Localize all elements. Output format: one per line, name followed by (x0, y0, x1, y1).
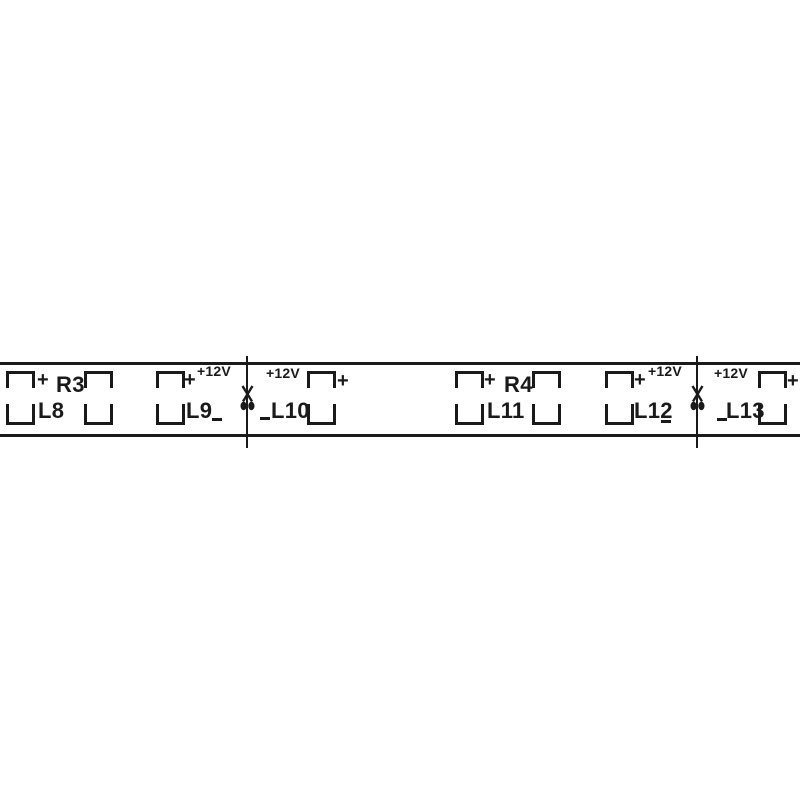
voltage-label: +12V (714, 366, 748, 380)
component-ref-label: L11 (487, 400, 525, 422)
plus-polarity-mark: + (787, 371, 799, 391)
component-ref-label: R4 (504, 374, 533, 396)
led-strip-diagram: L8R3L9L10L11R4L12L13+12V+12V+12V+12V++++… (0, 0, 800, 800)
plus-polarity-mark: + (634, 370, 646, 390)
component-ref-label: L8 (38, 400, 64, 422)
plus-polarity-mark: + (37, 370, 49, 390)
scissors-icon (239, 385, 256, 412)
voltage-label: +12V (266, 366, 300, 380)
led-footprint-L9-bottom-pad (156, 404, 185, 425)
led-footprint-L10-bottom-pad (307, 404, 336, 425)
minus-polarity-mark (212, 418, 222, 421)
component-ref-label: L9 (186, 400, 212, 422)
component-ref-label: R3 (56, 374, 85, 396)
led-footprint-L12-top-pad (605, 371, 634, 388)
minus-polarity-mark (717, 418, 727, 421)
component-ref-label: L13 (726, 400, 765, 422)
resistor-footprint-R3-bottom-pad (84, 404, 113, 425)
minus-polarity-mark (661, 420, 671, 423)
resistor-footprint-R3-top-pad (84, 371, 113, 388)
led-footprint-L9-top-pad (156, 371, 185, 388)
resistor-footprint-R4-top-pad (532, 371, 561, 388)
led-footprint-L11-top-pad (455, 371, 484, 388)
plus-polarity-mark: + (184, 370, 196, 390)
component-ref-label: L12 (634, 400, 673, 422)
plus-polarity-mark: + (337, 371, 349, 391)
resistor-footprint-R4-bottom-pad (532, 404, 561, 425)
voltage-label: +12V (197, 364, 231, 378)
strip-bottom-edge (0, 434, 800, 437)
voltage-label: +12V (648, 364, 682, 378)
led-footprint-L10-top-pad (307, 371, 336, 388)
led-footprint-L8-top-pad (6, 371, 35, 388)
minus-polarity-mark (260, 417, 270, 420)
led-footprint-L12-bottom-pad (605, 404, 634, 425)
led-footprint-L11-bottom-pad (455, 404, 484, 425)
scissors-icon (689, 385, 706, 412)
led-footprint-L13-top-pad (758, 371, 787, 388)
component-ref-label: L10 (271, 400, 310, 422)
plus-polarity-mark: + (484, 370, 496, 390)
led-footprint-L8-bottom-pad (6, 404, 35, 425)
